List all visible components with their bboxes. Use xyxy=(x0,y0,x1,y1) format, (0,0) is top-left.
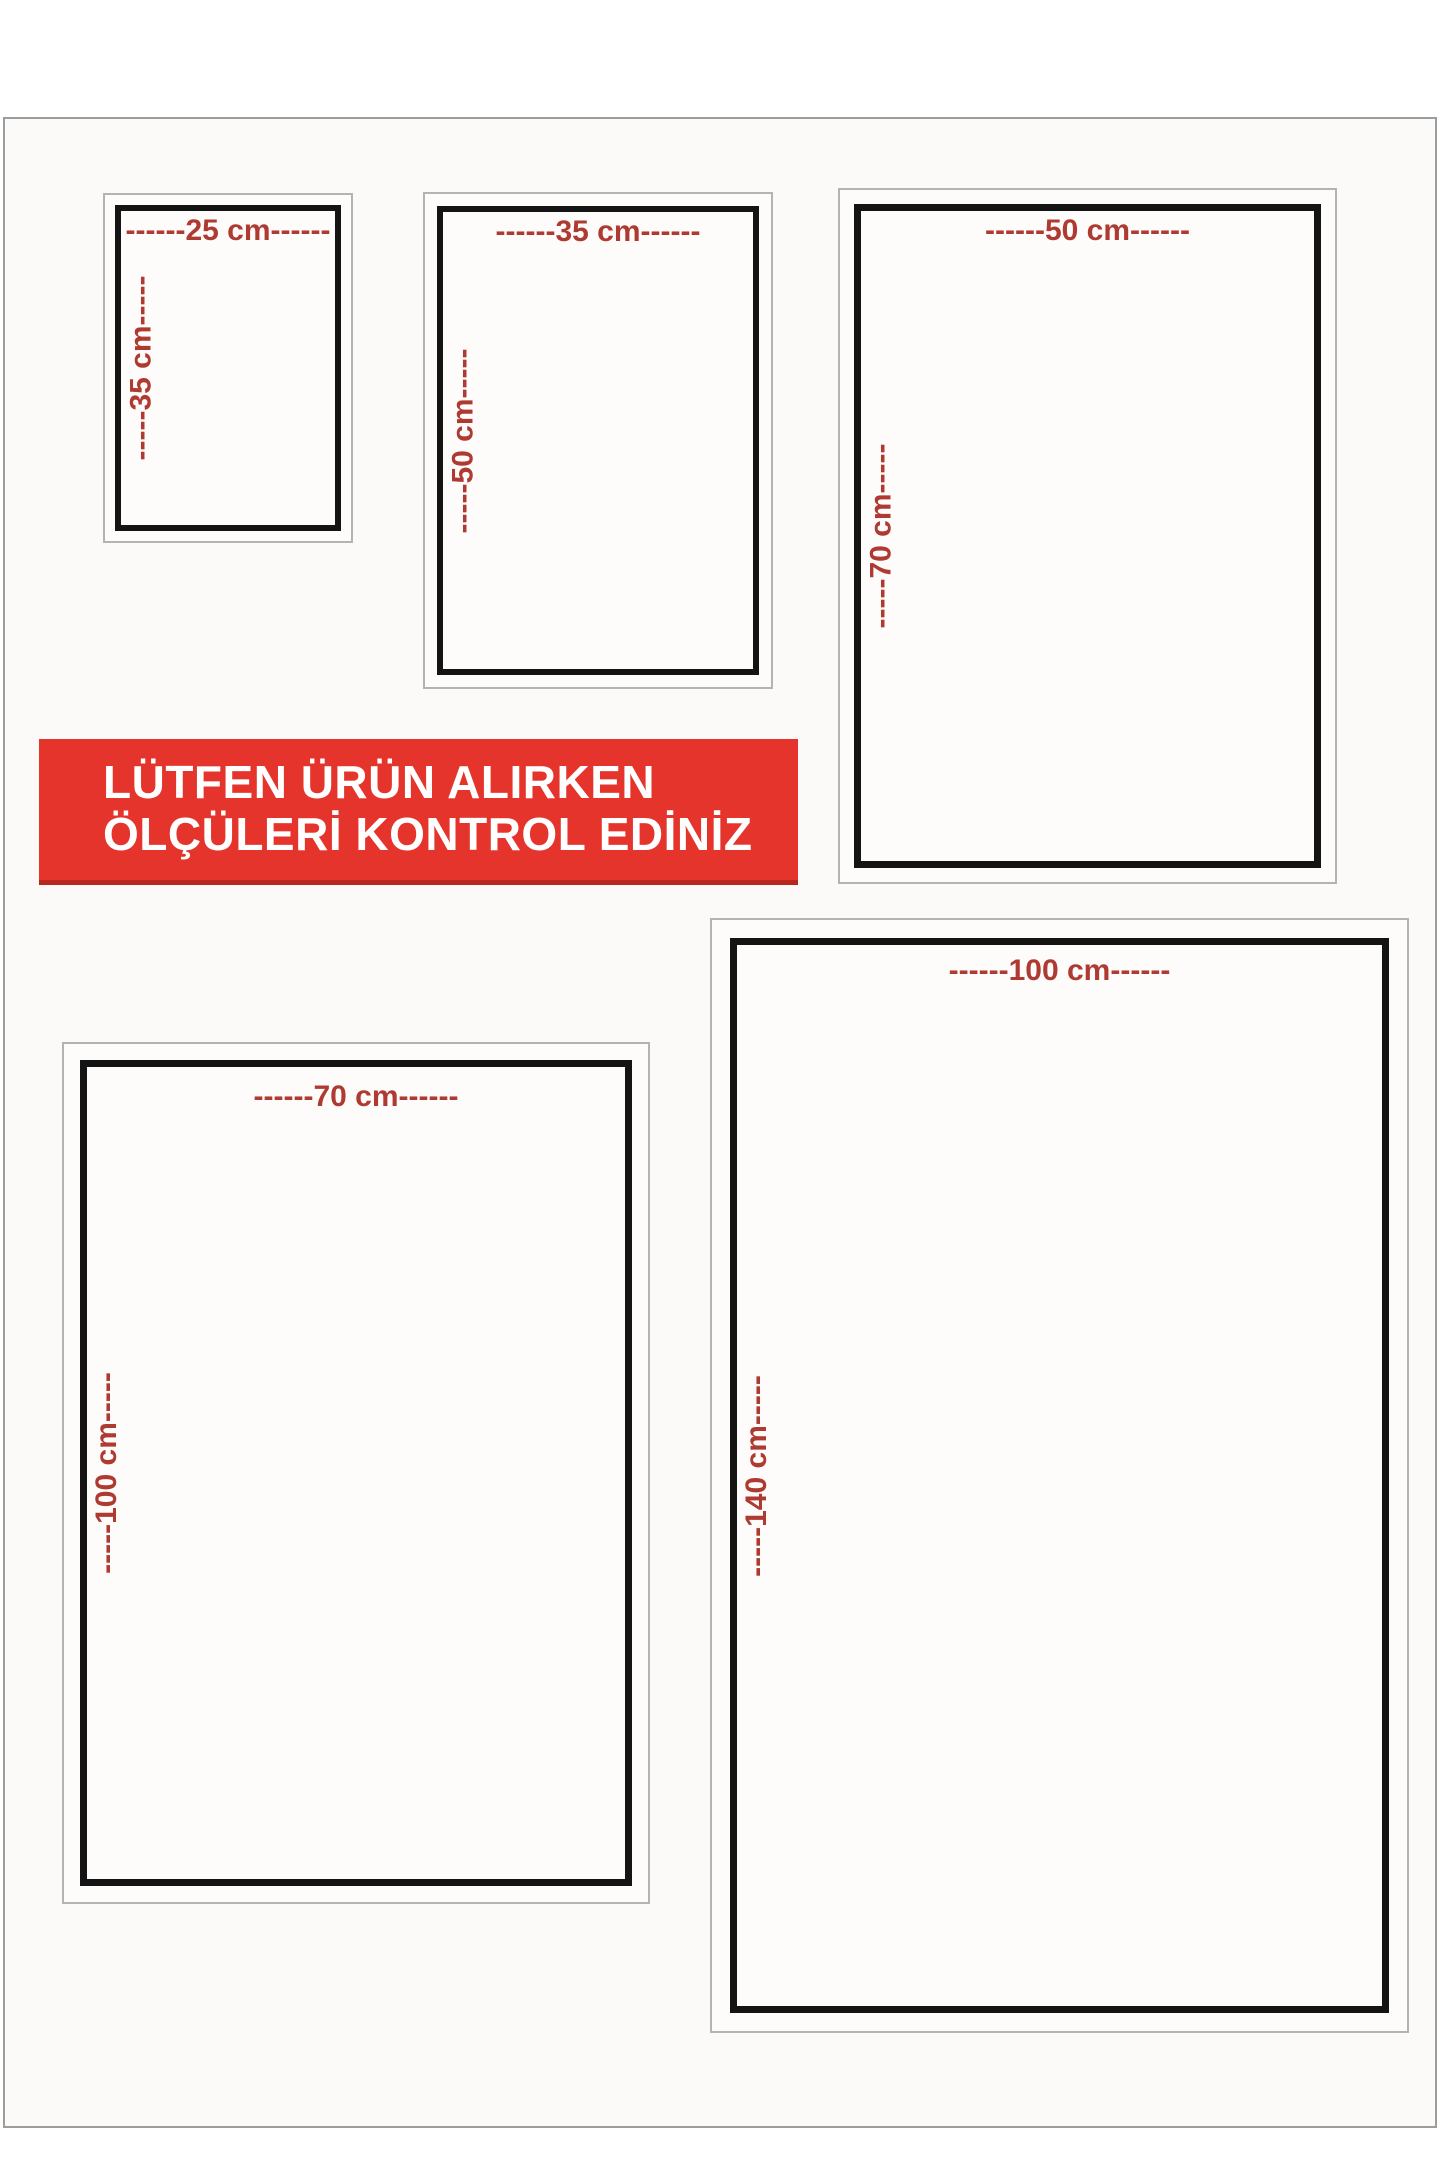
height-label-35cm-wrap: -----35 cm----- xyxy=(123,211,159,525)
size-box-25x35-inner: ------25 cm------ -----35 cm----- xyxy=(115,205,341,531)
height-label-100cm: -----100 cm----- xyxy=(91,1372,123,1574)
size-box-100x140-inner: ------100 cm------ -----140 cm----- xyxy=(730,938,1389,2013)
warning-banner-line2: ÖLÇÜLERİ KONTROL EDİNİZ xyxy=(103,808,798,860)
height-label-100cm-wrap: -----100 cm----- xyxy=(89,1067,125,1879)
size-box-70x100: ------70 cm------ -----100 cm----- xyxy=(62,1042,650,1904)
height-label-140cm-wrap: -----140 cm----- xyxy=(739,945,775,2006)
size-box-100x140: ------100 cm------ -----140 cm----- xyxy=(710,918,1409,2033)
width-label-35cm: ------35 cm------ xyxy=(443,216,753,248)
height-label-140cm: -----140 cm----- xyxy=(741,1375,773,1577)
size-box-50x70-inner: ------50 cm------ -----70 cm----- xyxy=(854,204,1321,868)
height-label-50cm: -----50 cm----- xyxy=(447,348,479,533)
width-label-50cm: ------50 cm------ xyxy=(861,215,1314,247)
height-label-35cm: -----35 cm----- xyxy=(125,276,157,461)
size-box-25x35: ------25 cm------ -----35 cm----- xyxy=(103,193,353,543)
size-box-35x50: ------35 cm------ -----50 cm----- xyxy=(423,192,773,689)
warning-banner: LÜTFEN ÜRÜN ALIRKEN ÖLÇÜLERİ KONTROL EDİ… xyxy=(39,739,798,885)
width-label-100cm: ------100 cm------ xyxy=(737,955,1382,987)
page-frame: ------25 cm------ -----35 cm----- ------… xyxy=(3,117,1437,2128)
height-label-70cm-wrap: -----70 cm----- xyxy=(863,211,899,861)
size-box-35x50-inner: ------35 cm------ -----50 cm----- xyxy=(437,206,759,675)
height-label-50cm-wrap: -----50 cm----- xyxy=(445,212,481,669)
size-box-70x100-inner: ------70 cm------ -----100 cm----- xyxy=(80,1060,632,1886)
width-label-70cm: ------70 cm------ xyxy=(87,1081,625,1113)
size-box-50x70: ------50 cm------ -----70 cm----- xyxy=(838,188,1337,884)
warning-banner-line1: LÜTFEN ÜRÜN ALIRKEN xyxy=(103,756,798,808)
height-label-70cm: -----70 cm----- xyxy=(865,444,897,629)
